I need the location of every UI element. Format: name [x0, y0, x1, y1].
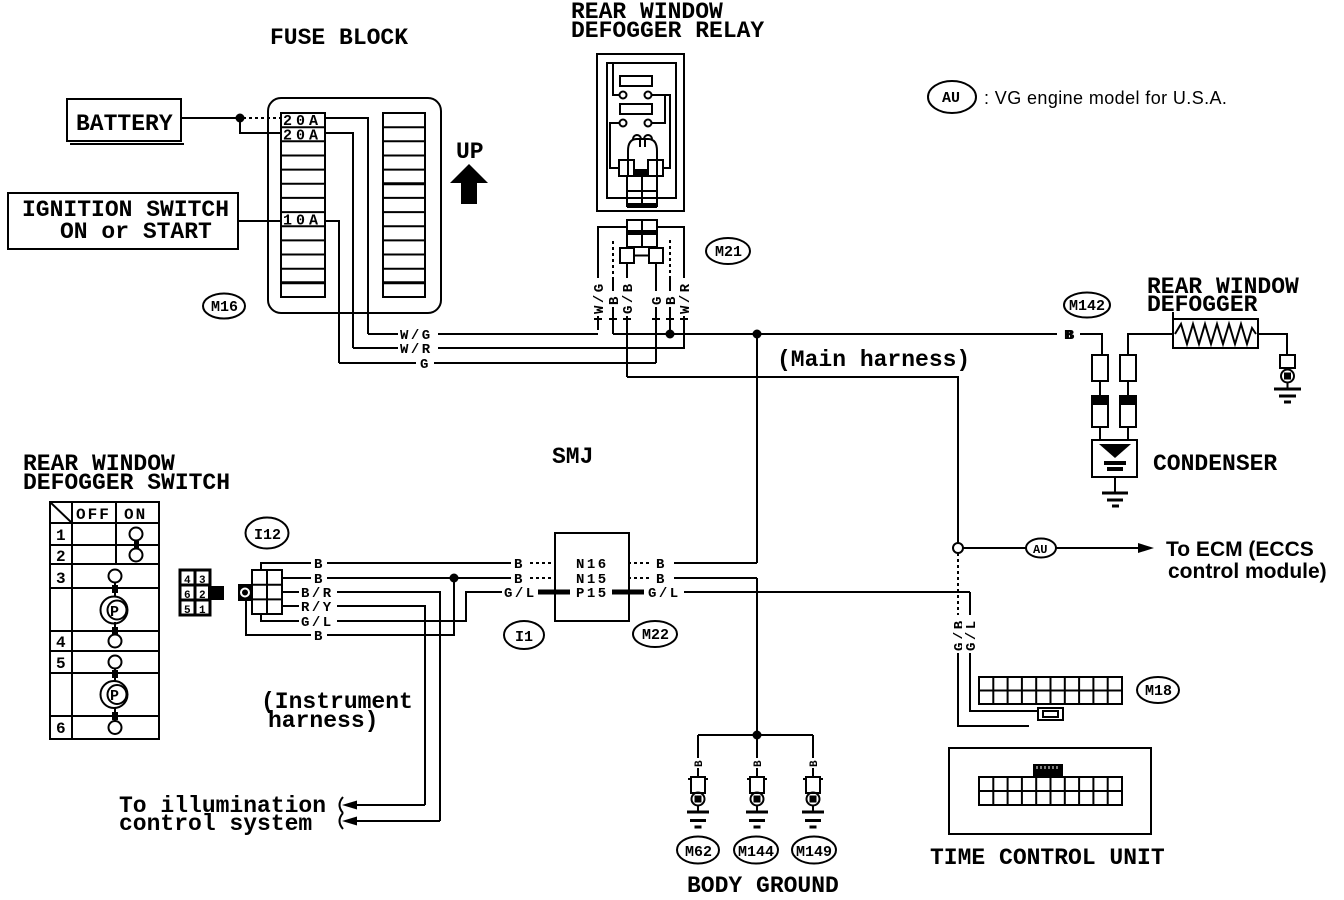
svg-text:P15: P15 [576, 586, 609, 602]
svg-text:B: B [694, 758, 706, 767]
svg-text:DEFOGGER RELAY: DEFOGGER RELAY [571, 18, 764, 44]
svg-text:M142: M142 [1069, 298, 1105, 315]
svg-text:DEFOGGER: DEFOGGER [1147, 292, 1258, 318]
svg-text:I12: I12 [254, 527, 281, 544]
svg-text:TIME CONTROL UNIT: TIME CONTROL UNIT [930, 845, 1165, 871]
svg-text:G/L: G/L [648, 586, 681, 602]
svg-text:ON or START: ON or START [60, 219, 212, 245]
svg-text:3: 3 [56, 570, 66, 588]
svg-text:B: B [809, 758, 821, 767]
svg-text:10A: 10A [283, 213, 322, 230]
svg-text:B: B [753, 758, 765, 767]
svg-text:P: P [110, 688, 119, 705]
svg-text:M62: M62 [685, 844, 712, 861]
svg-text:G/L: G/L [964, 618, 980, 651]
svg-text:6: 6 [184, 590, 191, 602]
svg-text:(Main harness): (Main harness) [777, 347, 970, 373]
svg-text:1: 1 [56, 527, 66, 545]
svg-text:I1: I1 [515, 629, 533, 646]
svg-text:5: 5 [184, 605, 191, 617]
svg-text:UP: UP [456, 139, 484, 165]
svg-text:6: 6 [56, 720, 66, 738]
svg-text:BATTERY: BATTERY [76, 111, 173, 137]
svg-text:G/L: G/L [504, 586, 537, 602]
svg-text:To ECM (ECCS: To ECM (ECCS [1166, 538, 1314, 561]
svg-text:OFF: OFF [76, 506, 111, 524]
svg-text:4: 4 [56, 634, 66, 652]
svg-text:P: P [110, 604, 119, 621]
svg-text:2: 2 [199, 590, 206, 602]
svg-text:control module): control module) [1168, 560, 1327, 583]
svg-text:: VG engine model for U.S.A.: : VG engine model for U.S.A. [984, 88, 1227, 108]
svg-text:M149: M149 [796, 844, 832, 861]
svg-text:N16: N16 [576, 557, 609, 573]
svg-text:BODY GROUND: BODY GROUND [687, 873, 839, 899]
svg-text:1: 1 [213, 590, 220, 602]
svg-text:DEFOGGER SWITCH: DEFOGGER SWITCH [23, 470, 230, 496]
svg-text:B: B [656, 557, 667, 573]
svg-text:AU: AU [942, 90, 960, 107]
svg-text:W/R: W/R [678, 281, 694, 314]
svg-text:M16: M16 [211, 299, 238, 316]
svg-text:B: B [1066, 328, 1077, 344]
svg-text:20A: 20A [283, 128, 322, 145]
svg-text:B: B [514, 557, 525, 573]
svg-text:control system: control system [119, 811, 312, 837]
svg-text:M18: M18 [1145, 683, 1172, 700]
svg-text:M21: M21 [715, 244, 742, 261]
svg-text:ON: ON [124, 506, 147, 524]
svg-text:G/B: G/B [621, 281, 637, 314]
svg-text:harness): harness) [268, 708, 378, 734]
svg-text:G: G [420, 357, 431, 373]
svg-text:SMJ: SMJ [552, 444, 593, 470]
svg-text:2: 2 [56, 548, 66, 566]
svg-text:B: B [314, 629, 325, 645]
svg-text:5: 5 [56, 655, 66, 673]
svg-text:FUSE BLOCK: FUSE BLOCK [270, 25, 408, 51]
svg-text:4: 4 [184, 575, 191, 587]
svg-text:M22: M22 [642, 627, 669, 644]
svg-text:M144: M144 [738, 844, 774, 861]
svg-text:1: 1 [199, 605, 206, 617]
svg-text:AU: AU [1033, 543, 1047, 557]
svg-text:3: 3 [199, 575, 206, 587]
svg-text:CONDENSER: CONDENSER [1153, 451, 1277, 477]
